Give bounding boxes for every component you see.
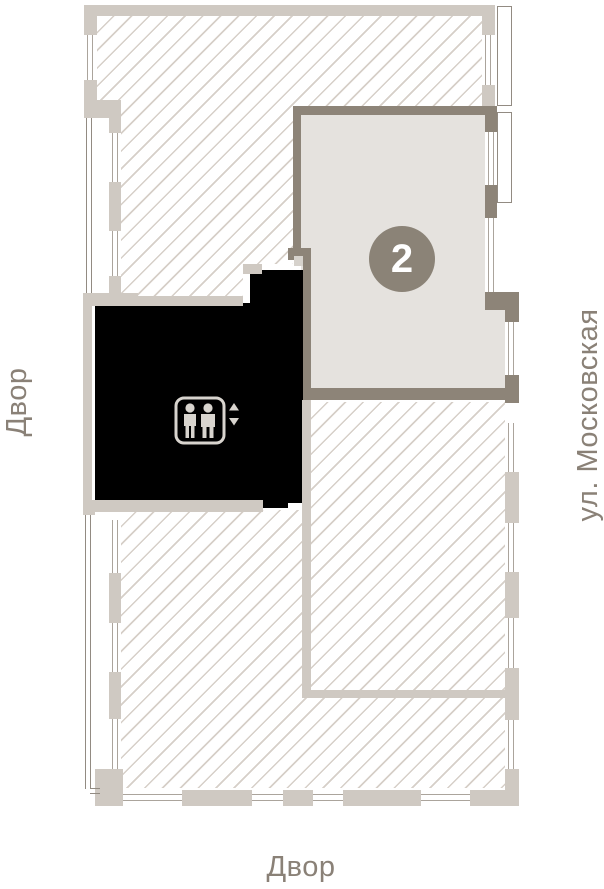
window-segment xyxy=(109,231,121,276)
floor-plan-screen: 2 Двор ул. Московская Двор xyxy=(0,0,604,889)
label-yard-bottom: Двор xyxy=(211,852,391,882)
wall-segment xyxy=(121,296,243,306)
window-segment xyxy=(505,720,519,769)
selected-unit-area-ext[interactable] xyxy=(485,310,505,388)
window-segment xyxy=(109,133,121,182)
wall-segment xyxy=(84,16,97,35)
elevator-people xyxy=(184,403,215,438)
balcony-outline xyxy=(85,515,91,789)
elevator-icon xyxy=(172,394,248,451)
wall-segment xyxy=(243,264,262,274)
balcony-outline xyxy=(90,788,100,794)
door-opening xyxy=(294,256,303,266)
selected-unit-wall xyxy=(485,185,497,218)
selected-unit-wall xyxy=(505,375,519,403)
selected-unit-wall xyxy=(485,106,497,132)
window-segment xyxy=(505,322,519,375)
selected-unit-wall xyxy=(303,254,311,388)
selected-unit-wall xyxy=(485,292,519,310)
wall-segment xyxy=(482,16,495,35)
window-segment xyxy=(485,132,497,185)
wall-segment xyxy=(109,118,121,133)
wall-segment xyxy=(83,500,95,515)
wall-segment xyxy=(283,790,313,806)
selected-unit-wall xyxy=(505,310,519,322)
wall-segment xyxy=(182,790,252,806)
window-segment xyxy=(84,35,97,80)
window-segment xyxy=(109,719,121,769)
wall-segment xyxy=(343,790,421,806)
selected-unit-wall xyxy=(293,106,497,115)
window-segment xyxy=(109,520,121,573)
wall-segment xyxy=(84,5,495,16)
balcony-outline xyxy=(497,112,512,203)
selected-unit-badge[interactable]: 2 xyxy=(369,226,435,292)
window-segment xyxy=(109,623,121,672)
core-area-notch xyxy=(263,500,288,508)
wall-segment xyxy=(505,769,519,806)
window-segment xyxy=(252,790,283,806)
balcony-outline xyxy=(497,6,512,106)
triangle-down-icon xyxy=(229,418,239,426)
wall-segment xyxy=(109,182,121,231)
window-segment xyxy=(482,35,495,85)
triangle-up-icon xyxy=(229,403,239,411)
wall-segment xyxy=(84,100,121,118)
wall-segment xyxy=(302,690,519,698)
label-yard-left: Двор xyxy=(2,342,32,462)
window-segment xyxy=(505,523,519,572)
window-segment xyxy=(123,790,182,806)
wall-segment xyxy=(505,472,519,523)
window-segment xyxy=(421,790,470,806)
floor-plan: 2 xyxy=(0,0,604,889)
label-street-right: ул. Московская xyxy=(573,300,603,530)
wall-segment xyxy=(84,80,97,102)
elevator-cab-outline xyxy=(176,398,224,443)
core-area-top xyxy=(250,270,303,310)
wall-segment xyxy=(302,400,311,697)
wall-segment xyxy=(109,672,121,719)
window-segment xyxy=(505,618,519,668)
hatched-unit-bottom-right xyxy=(311,402,505,690)
balcony-outline xyxy=(86,118,92,293)
selected-unit-wall xyxy=(293,106,301,252)
selected-unit-wall xyxy=(303,388,519,400)
wall-segment xyxy=(505,572,519,618)
wall-segment xyxy=(109,573,121,623)
window-segment xyxy=(313,790,343,806)
window-segment xyxy=(485,218,497,292)
wall-segment xyxy=(92,500,263,512)
window-segment xyxy=(505,423,519,472)
wall-segment xyxy=(83,293,92,512)
wall-segment xyxy=(482,85,495,106)
